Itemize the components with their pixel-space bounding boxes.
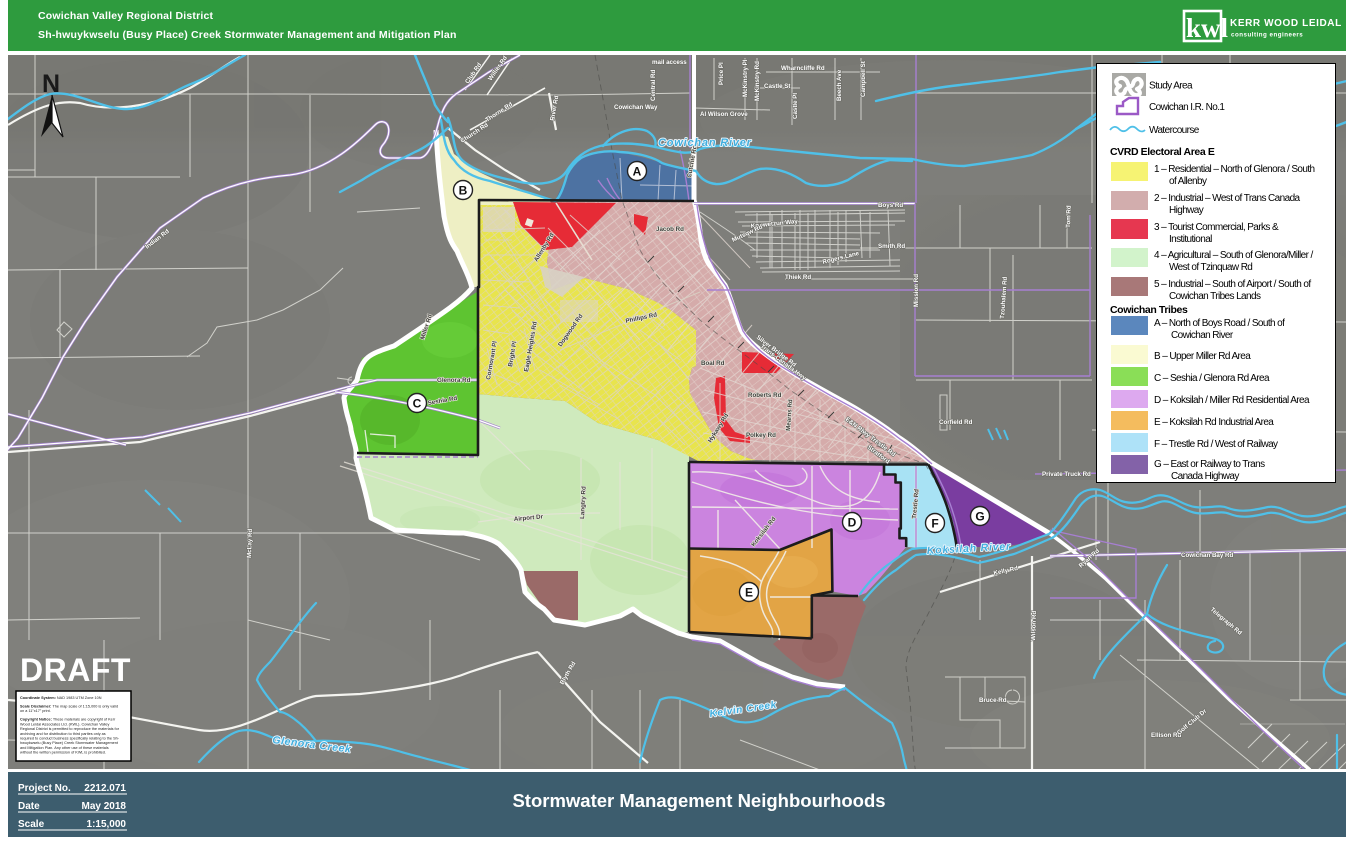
svg-text:McLay Rd: McLay Rd [246, 528, 254, 558]
svg-text:Study Area: Study Area [1149, 81, 1193, 92]
svg-text:Boal Rd: Boal Rd [701, 360, 725, 367]
svg-text:Polkey Rd: Polkey Rd [746, 432, 776, 439]
svg-text:Corfield Rd: Corfield Rd [939, 419, 973, 426]
svg-text:E: E [745, 586, 753, 600]
svg-text:Glenora Rd: Glenora Rd [437, 377, 471, 384]
svg-text:West of Tzinquaw Rd: West of Tzinquaw Rd [1169, 262, 1252, 273]
svg-text:Cowichan Way: Cowichan Way [614, 104, 658, 111]
svg-text:G: G [975, 510, 984, 524]
svg-text:McKinstry Pl: McKinstry Pl [742, 59, 749, 97]
svg-text:Cowichan River: Cowichan River [1171, 330, 1234, 341]
svg-text:A – North of Boys Road / South: A – North of Boys Road / South of [1154, 318, 1285, 329]
svg-text:on a 11"x17" print.: on a 11"x17" print. [20, 709, 51, 713]
svg-text:required to conduct business s: required to conduct business specificall… [20, 737, 120, 741]
svg-text:B – Upper Miller Rd Area: B – Upper Miller Rd Area [1154, 351, 1251, 362]
svg-text:Al Wilson Grove: Al Wilson Grove [700, 111, 748, 118]
svg-text:5 – Industrial – South of Airp: 5 – Industrial – South of Airport / Sout… [1154, 279, 1311, 290]
svg-text:Castle Pl: Castle Pl [792, 93, 799, 119]
svg-text:A: A [633, 165, 642, 179]
svg-text:Campbell St: Campbell St [860, 61, 867, 97]
svg-text:Mission Rd: Mission Rd [913, 274, 920, 307]
svg-text:D – Koksilah / Miller Rd Resid: D – Koksilah / Miller Rd Residential Are… [1154, 395, 1310, 406]
svg-text:CVRD Electoral Area E: CVRD Electoral Area E [1110, 146, 1215, 158]
svg-text:4 – Agricultural – South of Gl: 4 – Agricultural – South of Glenora/Mill… [1154, 250, 1314, 261]
svg-text:Cowichan Tribes: Cowichan Tribes [1110, 304, 1188, 316]
svg-text:Beech Ave: Beech Ave [836, 69, 843, 101]
svg-text:Smith Rd: Smith Rd [878, 243, 905, 250]
svg-text:Jacob Rd: Jacob Rd [656, 226, 684, 233]
svg-text:Cowichan I.R. No.1: Cowichan I.R. No.1 [1149, 102, 1225, 113]
svg-text:F – Trestle Rd / West of Railw: F – Trestle Rd / West of Railway [1154, 439, 1278, 450]
svg-text:F: F [931, 517, 938, 531]
svg-text:3 – Tourist Commercial, Parks: 3 – Tourist Commercial, Parks & [1154, 222, 1279, 233]
svg-text:B: B [459, 184, 468, 198]
svg-text:Roberts Rd: Roberts Rd [748, 392, 782, 399]
svg-text:N: N [42, 70, 60, 98]
svg-text:1 – Residential – North of Gle: 1 – Residential – North of Glenora / Sou… [1154, 164, 1315, 175]
svg-text:D: D [848, 516, 857, 530]
svg-text:Boys Rd: Boys Rd [878, 202, 903, 209]
svg-text:McKinstry Rd: McKinstry Rd [754, 61, 761, 101]
svg-text:Institutional: Institutional [1169, 234, 1212, 245]
svg-text:Bruce Rd: Bruce Rd [979, 697, 1007, 704]
svg-text:Wharncliffe Rd: Wharncliffe Rd [781, 65, 825, 72]
svg-text:Regional District is permitted: Regional District is permitted to reprod… [20, 727, 120, 731]
svg-text:consulting engineers: consulting engineers [1231, 32, 1303, 39]
svg-text:and Mitigation Plan. Any other: and Mitigation Plan. Any other use of th… [20, 746, 109, 750]
svg-text:Cowichan River: Cowichan River [658, 137, 752, 149]
svg-text:without the written permission: without the written permission of KWL is… [20, 751, 106, 755]
svg-text:Highway: Highway [1169, 205, 1204, 216]
svg-text:of Allenby: of Allenby [1169, 176, 1207, 187]
svg-text:hwuykwselu (Busy Place) Creek: hwuykwselu (Busy Place) Creek Stormwater… [20, 741, 119, 745]
svg-text:2 – Industrial – West of Trans: 2 – Industrial – West of Trans Canada [1154, 193, 1301, 204]
svg-text:Cowichan Bay Rd: Cowichan Bay Rd [1181, 552, 1233, 559]
svg-text:Thiek Rd: Thiek Rd [785, 274, 811, 281]
svg-text:Castle St: Castle St [764, 83, 790, 90]
svg-text:1:15,000: 1:15,000 [87, 819, 127, 830]
svg-text:C: C [413, 397, 422, 411]
svg-text:Scale: Scale [18, 819, 45, 830]
svg-text:DRAFT: DRAFT [20, 652, 131, 688]
svg-text:mail access: mail access [652, 59, 687, 66]
svg-text:KERR WOOD LEIDAL: KERR WOOD LEIDAL [1230, 18, 1342, 29]
svg-text:Watercourse: Watercourse [1149, 125, 1200, 136]
svg-text:kwl: kwl [1186, 13, 1229, 43]
svg-text:Tom Rd: Tom Rd [1065, 205, 1073, 228]
svg-text:Cowichan Tribes Lands: Cowichan Tribes Lands [1169, 291, 1261, 302]
svg-text:Wilson Rd: Wilson Rd [1030, 610, 1038, 641]
svg-text:E – Koksilah Rd Industrial Are: E – Koksilah Rd Industrial Area [1154, 417, 1274, 428]
svg-text:Central Rd: Central Rd [650, 69, 657, 101]
svg-text:archiving and for distribution: archiving and for distribution to third … [20, 732, 106, 736]
svg-text:Canada Highway: Canada Highway [1171, 471, 1239, 481]
svg-text:Private Truck Rd: Private Truck Rd [1042, 471, 1091, 478]
svg-text:Scale Disclaimer: The map scal: Scale Disclaimer: The map scale of 1:15,… [20, 705, 118, 709]
svg-text:Coordinate System: NAD 1983 UT: Coordinate System: NAD 1983 UTM Zone 10N [20, 696, 102, 700]
svg-text:C – Seshia / Glenora Rd Area: C – Seshia / Glenora Rd Area [1154, 373, 1270, 384]
svg-text:Price Pl: Price Pl [718, 62, 725, 85]
svg-text:Wood Leidal Associates Ltd. (K: Wood Leidal Associates Ltd. (KWL). Cowic… [20, 722, 109, 726]
svg-text:Copyright Notice: These materi: Copyright Notice: These materials are co… [20, 718, 116, 722]
svg-text:G – East or Railway to Trans: G – East or Railway to Trans [1154, 459, 1265, 470]
